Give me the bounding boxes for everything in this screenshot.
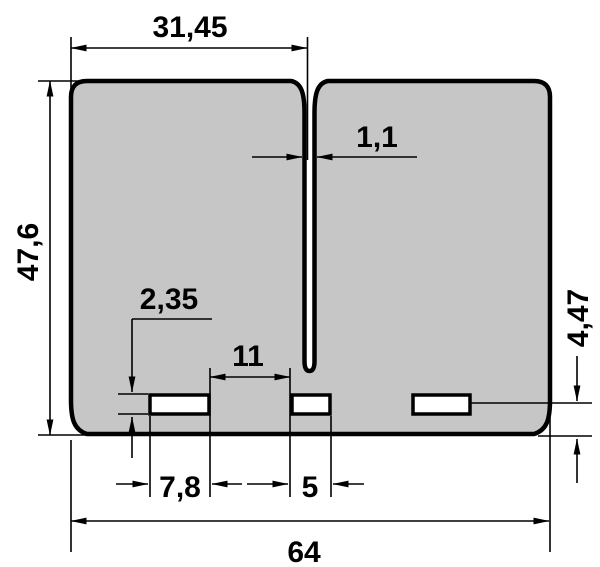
dim-label-center-slot-width: 1,1: [356, 121, 398, 154]
left-port-slot: [150, 395, 209, 414]
dim-label-port-height: 2,35: [140, 283, 198, 316]
dim-label-port-gap: 11: [232, 340, 264, 373]
dim-label-left-port-width: 7,8: [159, 471, 201, 504]
dim-label-overall-height: 47,6: [12, 223, 45, 281]
dim-label-right-port-bottom-offset: 4,47: [562, 289, 595, 347]
reed-petal-outline: [71, 81, 550, 434]
drawing-canvas: 31,45 1,1 47,6 2,35 11 7,8 5 4,47 64: [0, 0, 600, 567]
dim-label-center-port-width: 5: [302, 471, 319, 504]
reed-petal-technical-drawing: 31,45 1,1 47,6 2,35 11 7,8 5 4,47 64: [0, 0, 600, 567]
dim-label-top-slot-offset: 31,45: [152, 11, 227, 44]
right-port-slot: [413, 395, 470, 414]
center-port-slot: [292, 395, 330, 414]
dim-label-overall-width: 64: [287, 536, 321, 567]
